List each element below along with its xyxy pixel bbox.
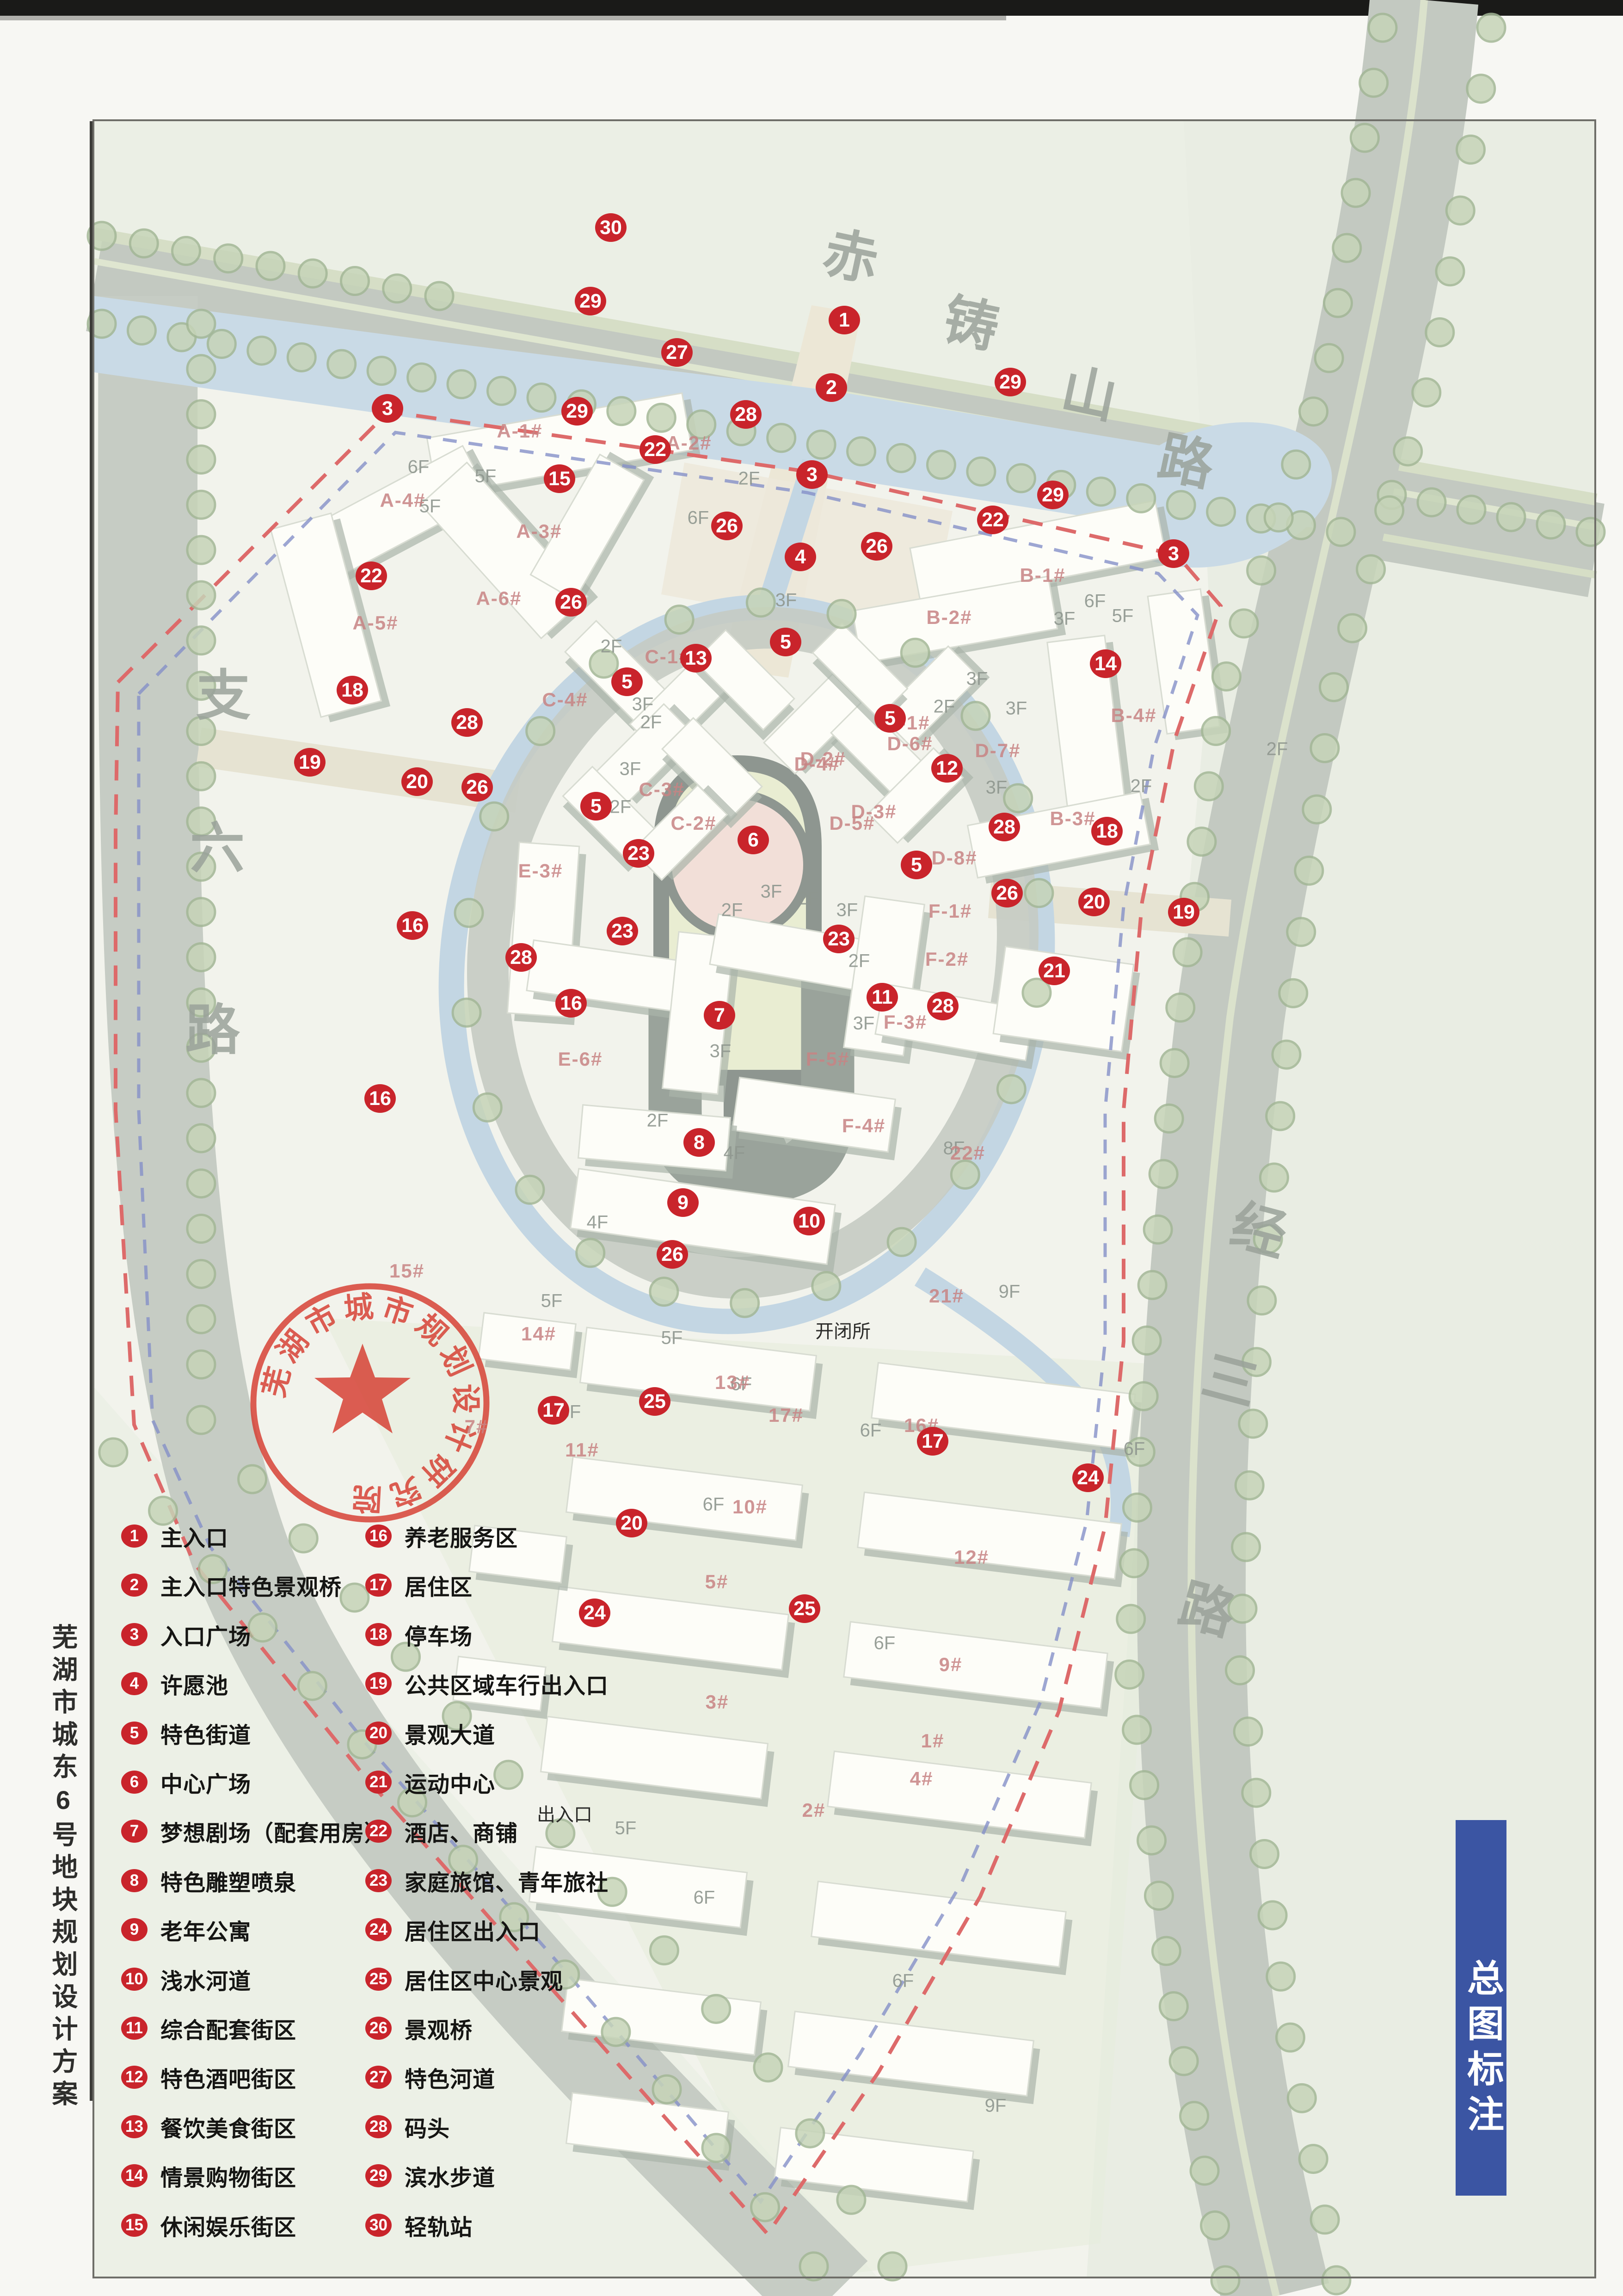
legend-number-badge: 25	[365, 1968, 392, 1991]
building-label: 12#	[954, 1546, 989, 1568]
building-label: A-3#	[516, 520, 562, 543]
map-marker-3: 3	[1158, 539, 1189, 568]
map-marker-29: 29	[575, 287, 606, 315]
map-marker-28: 28	[451, 708, 483, 737]
map-marker-26: 26	[991, 879, 1023, 907]
legend-number-badge: 15	[121, 2214, 148, 2237]
map-marker-19: 19	[1168, 898, 1199, 926]
legend-item-23: 23家庭旅馆、青年旅社	[365, 1856, 609, 1905]
tree-icon	[1467, 75, 1495, 103]
building-label: B-3#	[1050, 808, 1095, 830]
map-marker-26: 26	[555, 588, 587, 617]
map-marker-25: 25	[639, 1387, 670, 1416]
legend-item-26: 26景观桥	[365, 2004, 473, 2053]
legend-number-badge: 21	[365, 1771, 392, 1794]
legend-item-label: 居住区	[405, 1569, 473, 1601]
tree-icon	[1477, 14, 1505, 42]
floor-label: 2F	[848, 951, 870, 972]
building-label: 21#	[929, 1285, 964, 1307]
floor-label: 6F	[694, 1888, 715, 1908]
building-label: 5#	[705, 1571, 729, 1593]
building-label: 2#	[802, 1799, 826, 1821]
floor-label: 3F	[966, 669, 988, 690]
legend-item-16: 16养老服务区	[365, 1512, 518, 1561]
map-marker-28: 28	[730, 400, 762, 429]
building-label: 3#	[706, 1691, 729, 1713]
legend-item-label: 养老服务区	[405, 1520, 518, 1552]
map-marker-8: 8	[683, 1128, 715, 1157]
legend-item-8: 8特色雕塑喷泉	[121, 1856, 296, 1905]
floor-label: 6F	[1124, 1439, 1145, 1460]
map-marker-6: 6	[738, 826, 769, 854]
map-marker-29: 29	[1037, 481, 1069, 509]
legend-item-label: 餐饮美食街区	[160, 2111, 296, 2143]
building-label: A-4#	[380, 489, 425, 512]
map-marker-16: 16	[364, 1084, 396, 1113]
floor-label: 3F	[710, 1041, 732, 1062]
map-marker-11: 11	[867, 983, 898, 1012]
map-marker-10: 10	[793, 1207, 825, 1235]
legend-number-badge: 4	[121, 1672, 148, 1695]
floor-label: 3F	[836, 900, 858, 921]
legend-number-badge: 24	[365, 1918, 392, 1941]
legend-item-label: 运动中心	[405, 1766, 495, 1798]
floor-label: 3F	[775, 590, 797, 611]
legend-item-label: 停车场	[405, 1618, 473, 1651]
legend-item-label: 轻轨站	[405, 2209, 473, 2241]
legend-item-15: 15休闲娱乐街区	[121, 2201, 296, 2250]
legend-item-9: 9老年公寓	[121, 1905, 251, 1954]
building-label: 14#	[521, 1323, 556, 1345]
floor-label: 5F	[615, 1818, 637, 1839]
floor-label: 3F	[853, 1013, 875, 1034]
map-marker-28: 28	[927, 992, 959, 1020]
floor-label: 2F	[738, 469, 760, 489]
title-divider-line	[90, 121, 92, 2101]
building-label: D-4#	[794, 753, 840, 775]
map-text-label: 开闭所	[815, 1316, 871, 1343]
legend-item-label: 码头	[405, 2111, 450, 2143]
legend-number-badge: 11	[121, 2017, 148, 2040]
building-label: 10#	[732, 1496, 768, 1518]
tree-icon	[1360, 69, 1388, 97]
legend-number-badge: 23	[365, 1869, 392, 1892]
map-marker-5: 5	[901, 851, 932, 879]
legend-number-badge: 14	[121, 2164, 148, 2187]
map-marker-26: 26	[461, 773, 493, 802]
floor-label: 3F	[986, 778, 1008, 798]
map-marker-16: 16	[555, 989, 587, 1018]
map-marker-26: 26	[657, 1240, 688, 1269]
legend-number-badge: 8	[121, 1869, 148, 1892]
tree-icon	[1369, 14, 1396, 42]
building-label: 15#	[389, 1260, 424, 1282]
floor-label: 2F	[640, 712, 662, 733]
map-marker-5: 5	[611, 667, 643, 696]
map-marker-25: 25	[789, 1594, 820, 1623]
floor-label: 2F	[721, 900, 743, 921]
legend-item-12: 12特色酒吧街区	[121, 2053, 296, 2102]
map-marker-27: 27	[661, 338, 693, 367]
map-marker-3: 3	[372, 394, 403, 423]
legend-item-5: 5特色街道	[121, 1709, 251, 1758]
legend-item-label: 景观大道	[405, 1717, 495, 1749]
floor-label: 4F	[587, 1212, 609, 1233]
legend-number-badge: 13	[121, 2115, 148, 2138]
legend-item-label: 梦想剧场（配套用房）	[160, 1815, 387, 1847]
building-label: B-2#	[926, 606, 972, 629]
legend-item-label: 许愿池	[160, 1667, 228, 1700]
floor-label: 9F	[985, 2096, 1007, 2117]
legend-item-label: 入口广场	[160, 1618, 251, 1651]
legend-item-3: 3入口广场	[121, 1610, 251, 1659]
legend-number-badge: 28	[365, 2115, 392, 2138]
legend-item-label: 情景购物街区	[160, 2160, 296, 2192]
building-label: A-6#	[476, 587, 522, 610]
legend-number-badge: 9	[121, 1918, 148, 1941]
building-label: E-3#	[518, 860, 563, 882]
legend-number-badge: 5	[121, 1722, 148, 1745]
legend-number-badge: 27	[365, 2066, 392, 2089]
legend-item-28: 28码头	[365, 2102, 450, 2151]
building-label: D-5#	[829, 812, 875, 834]
building-label: 7#	[465, 1416, 488, 1438]
legend-item-label: 主入口	[160, 1520, 228, 1552]
legend-number-badge: 30	[365, 2214, 392, 2237]
legend-item-21: 21运动中心	[365, 1758, 495, 1807]
map-marker-22: 22	[977, 506, 1008, 534]
building-label: 4#	[910, 1768, 934, 1790]
building-label: F-3#	[884, 1011, 927, 1033]
map-marker-5: 5	[770, 628, 801, 656]
building-label: 13#	[715, 1371, 750, 1394]
legend-item-label: 特色河道	[405, 2061, 495, 2093]
floor-label: 4F	[724, 1143, 745, 1164]
legend-number-badge: 3	[121, 1623, 148, 1646]
legend-item-27: 27特色河道	[365, 2053, 495, 2102]
building-label: C-2#	[670, 812, 716, 834]
legend-item-label: 酒店、商铺	[405, 1815, 518, 1847]
legend-number-badge: 26	[365, 2017, 392, 2040]
legend-item-1: 1主入口	[121, 1512, 228, 1561]
legend-item-4: 4许愿池	[121, 1659, 228, 1708]
map-marker-5: 5	[580, 792, 612, 821]
building-label: D-7#	[975, 740, 1021, 762]
floor-label: 6F	[874, 1633, 896, 1654]
building-label: C-3#	[639, 778, 684, 801]
legend-item-label: 居住区中心景观	[405, 1963, 563, 1995]
map-marker-15: 15	[544, 464, 575, 493]
map-marker-16: 16	[397, 911, 428, 940]
legend-item-label: 特色酒吧街区	[160, 2061, 296, 2093]
legend-number-badge: 7	[121, 1820, 148, 1843]
map-marker-4: 4	[785, 543, 816, 571]
legend-item-label: 浅水河道	[160, 1963, 251, 1995]
legend-item-label: 居住区出入口	[405, 1913, 541, 1946]
map-marker-12: 12	[931, 754, 963, 783]
map-marker-2: 2	[816, 373, 847, 402]
building-label: F-5#	[806, 1048, 849, 1070]
map-marker-28: 28	[505, 943, 537, 972]
legend-item-29: 29滨水步道	[365, 2151, 495, 2200]
legend-number-badge: 10	[121, 1968, 148, 1991]
floor-label: 2F	[1131, 776, 1152, 797]
floor-label: 2F	[1266, 739, 1288, 760]
legend-item-13: 13餐饮美食街区	[121, 2102, 296, 2151]
sheet-tag-box: 总图标注	[1456, 1820, 1506, 2196]
legend-item-11: 11综合配套街区	[121, 2004, 296, 2053]
map-marker-23: 23	[823, 925, 855, 953]
map-marker-17: 17	[917, 1427, 948, 1456]
map-text-label: 出入口	[537, 1800, 592, 1827]
floor-label: 3F	[761, 882, 782, 902]
map-marker-20: 20	[1078, 888, 1110, 916]
legend-item-20: 20景观大道	[365, 1709, 495, 1758]
legend-number-badge: 22	[365, 1820, 392, 1843]
legend-item-10: 10浅水河道	[121, 1955, 251, 2004]
floor-label: 2F	[934, 697, 955, 717]
building-label: F-1#	[928, 900, 972, 922]
floor-label: 2F	[601, 636, 622, 657]
legend-number-badge: 6	[121, 1771, 148, 1794]
legend-number-badge: 2	[121, 1574, 148, 1597]
map-marker-14: 14	[1090, 649, 1121, 678]
legend-number-badge: 12	[121, 2066, 148, 2089]
floor-label: 5F	[541, 1291, 563, 1312]
project-side-title: 芜湖市城东6号地块规划设计方案	[44, 1623, 82, 2112]
legend-number-badge: 20	[365, 1722, 392, 1745]
map-marker-29: 29	[995, 368, 1026, 396]
legend-number-badge: 16	[365, 1524, 392, 1548]
building-label: F-4#	[842, 1115, 885, 1137]
map-marker-20: 20	[616, 1509, 647, 1537]
floor-label: 6F	[860, 1420, 882, 1441]
map-marker-1: 1	[829, 306, 860, 334]
building-label: 9#	[939, 1654, 963, 1676]
floor-label: 3F	[1006, 698, 1027, 719]
building-label: B-1#	[1020, 564, 1065, 586]
legend-item-17: 17居住区	[365, 1561, 473, 1610]
map-marker-26: 26	[711, 512, 743, 540]
map-marker-20: 20	[401, 767, 433, 796]
floor-label: 3F	[620, 759, 641, 780]
building-label: 22#	[950, 1142, 985, 1164]
legend-item-label: 滨水步道	[405, 2160, 495, 2192]
map-marker-30: 30	[595, 213, 627, 242]
legend-item-label: 中心广场	[160, 1766, 251, 1798]
map-marker-5: 5	[874, 704, 906, 733]
legend-number-badge: 1	[121, 1524, 148, 1548]
map-marker-24: 24	[1072, 1463, 1104, 1492]
legend-number-badge: 19	[365, 1672, 392, 1695]
map-marker-17: 17	[538, 1396, 569, 1425]
legend-item-label: 公共区域车行出入口	[405, 1667, 609, 1700]
legend-item-24: 24居住区出入口	[365, 1905, 541, 1954]
floor-label: 6F	[892, 1971, 914, 1992]
map-marker-7: 7	[704, 1001, 735, 1030]
floor-label: 5F	[475, 466, 497, 487]
legend-item-18: 18停车场	[365, 1610, 473, 1659]
legend-number-badge: 17	[365, 1574, 392, 1597]
legend-item-label: 主入口特色景观桥	[160, 1569, 342, 1601]
floor-label: 6F	[688, 508, 709, 529]
map-marker-21: 21	[1039, 957, 1070, 985]
floor-label: 3F	[1054, 609, 1076, 630]
legend-item-6: 6中心广场	[121, 1758, 251, 1807]
floor-label: 2F	[798, 889, 819, 909]
legend-item-30: 30轻轨站	[365, 2201, 473, 2250]
floor-label: 5F	[661, 1328, 683, 1349]
legend-item-label: 综合配套街区	[160, 2012, 296, 2044]
legend-number-badge: 29	[365, 2164, 392, 2187]
floor-label: 6F	[408, 457, 430, 478]
legend-item-22: 22酒店、商铺	[365, 1807, 518, 1856]
building-label: A-5#	[352, 612, 398, 634]
legend-item-label: 特色街道	[160, 1717, 251, 1749]
building-label: 11#	[565, 1439, 599, 1461]
legend-item-label: 家庭旅馆、青年旅社	[405, 1864, 609, 1897]
map-marker-23: 23	[623, 839, 654, 868]
building-label: C-4#	[542, 689, 588, 711]
legend-item-19: 19公共区域车行出入口	[365, 1659, 609, 1708]
floor-label: 2F	[610, 797, 632, 818]
building-label: 1#	[921, 1730, 945, 1752]
legend-item-7: 7梦想剧场（配套用房）	[121, 1807, 387, 1856]
map-marker-18: 18	[337, 676, 368, 704]
building-label: F-2#	[925, 948, 969, 970]
floor-label: 6F	[703, 1494, 725, 1515]
legend-item-label: 老年公寓	[160, 1913, 251, 1946]
map-marker-19: 19	[294, 748, 326, 777]
legend-item-25: 25居住区中心景观	[365, 1955, 563, 2004]
legend-item-label: 特色雕塑喷泉	[160, 1864, 296, 1897]
building-label: 17#	[768, 1404, 804, 1426]
building-label: D-8#	[931, 847, 977, 869]
building-label: A-2#	[666, 432, 712, 454]
legend-item-label: 景观桥	[405, 2012, 473, 2044]
floor-label: 6F	[1084, 591, 1106, 612]
building-label: E-6#	[558, 1048, 603, 1070]
map-marker-29: 29	[561, 397, 593, 426]
map-marker-26: 26	[861, 532, 892, 561]
map-marker-24: 24	[579, 1599, 610, 1627]
legend-number-badge: 18	[365, 1623, 392, 1646]
building-label: D-6#	[887, 733, 933, 755]
map-marker-22: 22	[356, 562, 387, 590]
building-label: B-4#	[1111, 704, 1156, 727]
map-marker-22: 22	[639, 435, 671, 464]
floor-label: 2F	[647, 1111, 669, 1131]
map-marker-9: 9	[667, 1188, 699, 1217]
map-marker-18: 18	[1091, 817, 1123, 846]
map-marker-3: 3	[796, 460, 828, 489]
map-marker-23: 23	[607, 917, 638, 945]
building-label: A-1#	[497, 420, 542, 442]
legend-item-label: 休闲娱乐街区	[160, 2209, 296, 2241]
map-marker-13: 13	[680, 644, 712, 673]
scanned-plan-sheet: 赤铸山路支六路经三路 芜湖市城市规划设计研究院 芜湖市城东6号地块规划设计方案 …	[0, 0, 1623, 2296]
sheet-frame	[92, 119, 1596, 2278]
floor-label: 5F	[1112, 606, 1134, 627]
legend-item-2: 2主入口特色景观桥	[121, 1561, 342, 1610]
map-marker-28: 28	[989, 813, 1020, 841]
legend-item-14: 14情景购物街区	[121, 2151, 296, 2200]
sheet-tag-text: 总图标注	[1456, 1959, 1509, 2140]
floor-label: 9F	[999, 1282, 1021, 1302]
